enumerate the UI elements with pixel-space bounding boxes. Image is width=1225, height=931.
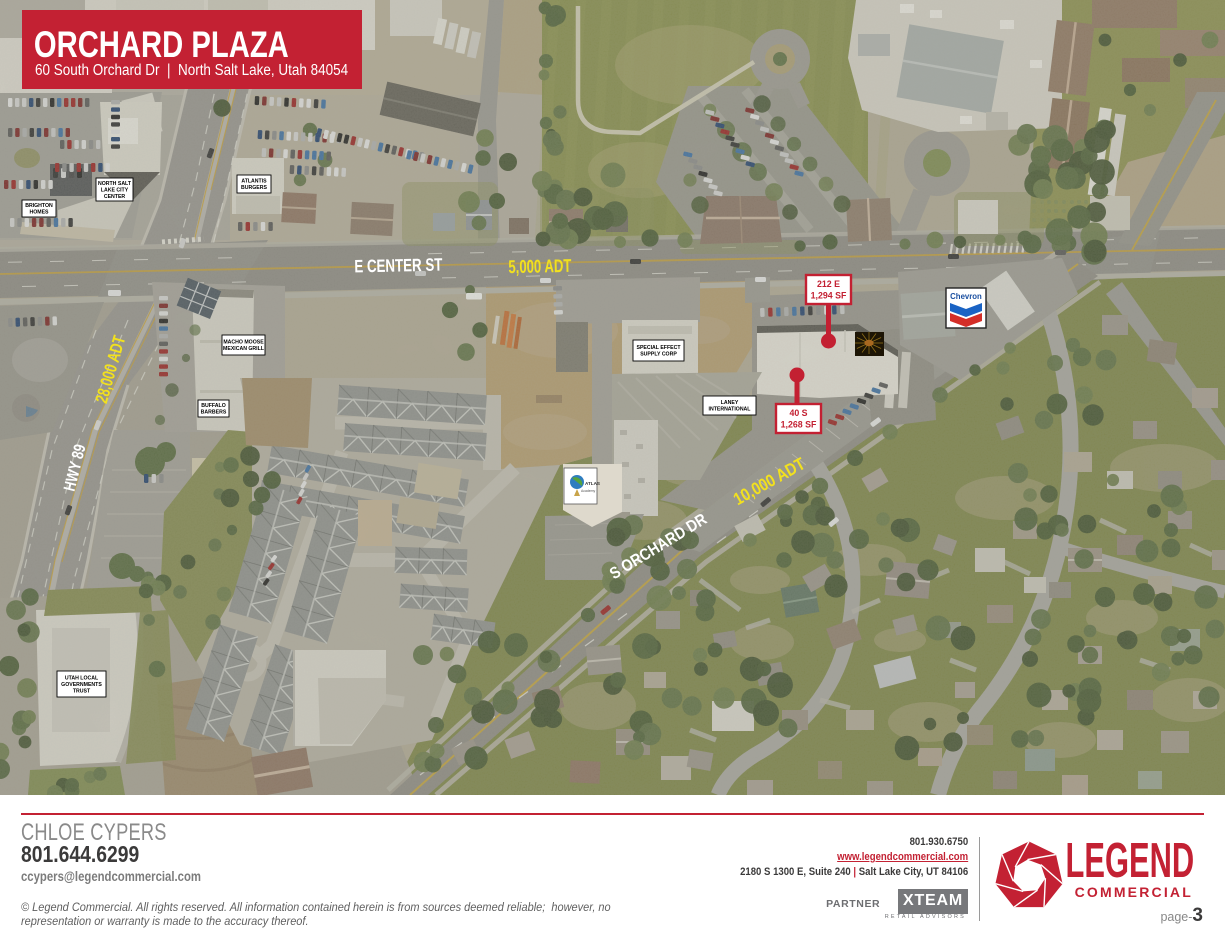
svg-text:212 E: 212 E [817,279,840,289]
svg-text:NORTH SALT: NORTH SALT [98,181,132,187]
svg-text:BURGERS: BURGERS [241,185,267,191]
svg-text:CENTER: CENTER [104,194,126,200]
svg-text:LANEY: LANEY [721,400,739,406]
svg-text:BUFFALO: BUFFALO [201,403,226,409]
svg-text:BARBERS: BARBERS [201,410,227,416]
svg-text:HOMES: HOMES [29,210,49,216]
svg-text:TRUST: TRUST [73,689,91,695]
svg-text:ATLANTIS: ATLANTIS [241,179,267,185]
svg-text:BRIGHTON: BRIGHTON [25,203,53,209]
svg-text:SUPPLY CORP: SUPPLY CORP [640,352,677,358]
svg-text:MACHO MOOSE: MACHO MOOSE [223,340,264,346]
svg-text:Chevron: Chevron [950,292,982,301]
svg-text:40 S: 40 S [789,408,807,418]
svg-text:ATLAS: ATLAS [585,481,600,486]
svg-text:UTAH LOCAL: UTAH LOCAL [65,675,99,681]
svg-text:1,268 SF: 1,268 SF [781,420,817,430]
svg-text:MEXICAN GRILL: MEXICAN GRILL [223,346,265,352]
svg-text:GOVERNMENTS: GOVERNMENTS [61,682,102,688]
svg-text:SPECIAL EFFECT: SPECIAL EFFECT [636,345,681,351]
svg-text:Academy: Academy [581,489,595,493]
svg-text:LAKE CITY: LAKE CITY [101,187,129,193]
svg-text:5,000 ADT: 5,000 ADT [508,256,572,278]
svg-text:1,294 SF: 1,294 SF [811,291,847,301]
svg-text:INTERNATIONAL: INTERNATIONAL [709,407,752,413]
svg-text:E CENTER ST: E CENTER ST [354,256,443,277]
